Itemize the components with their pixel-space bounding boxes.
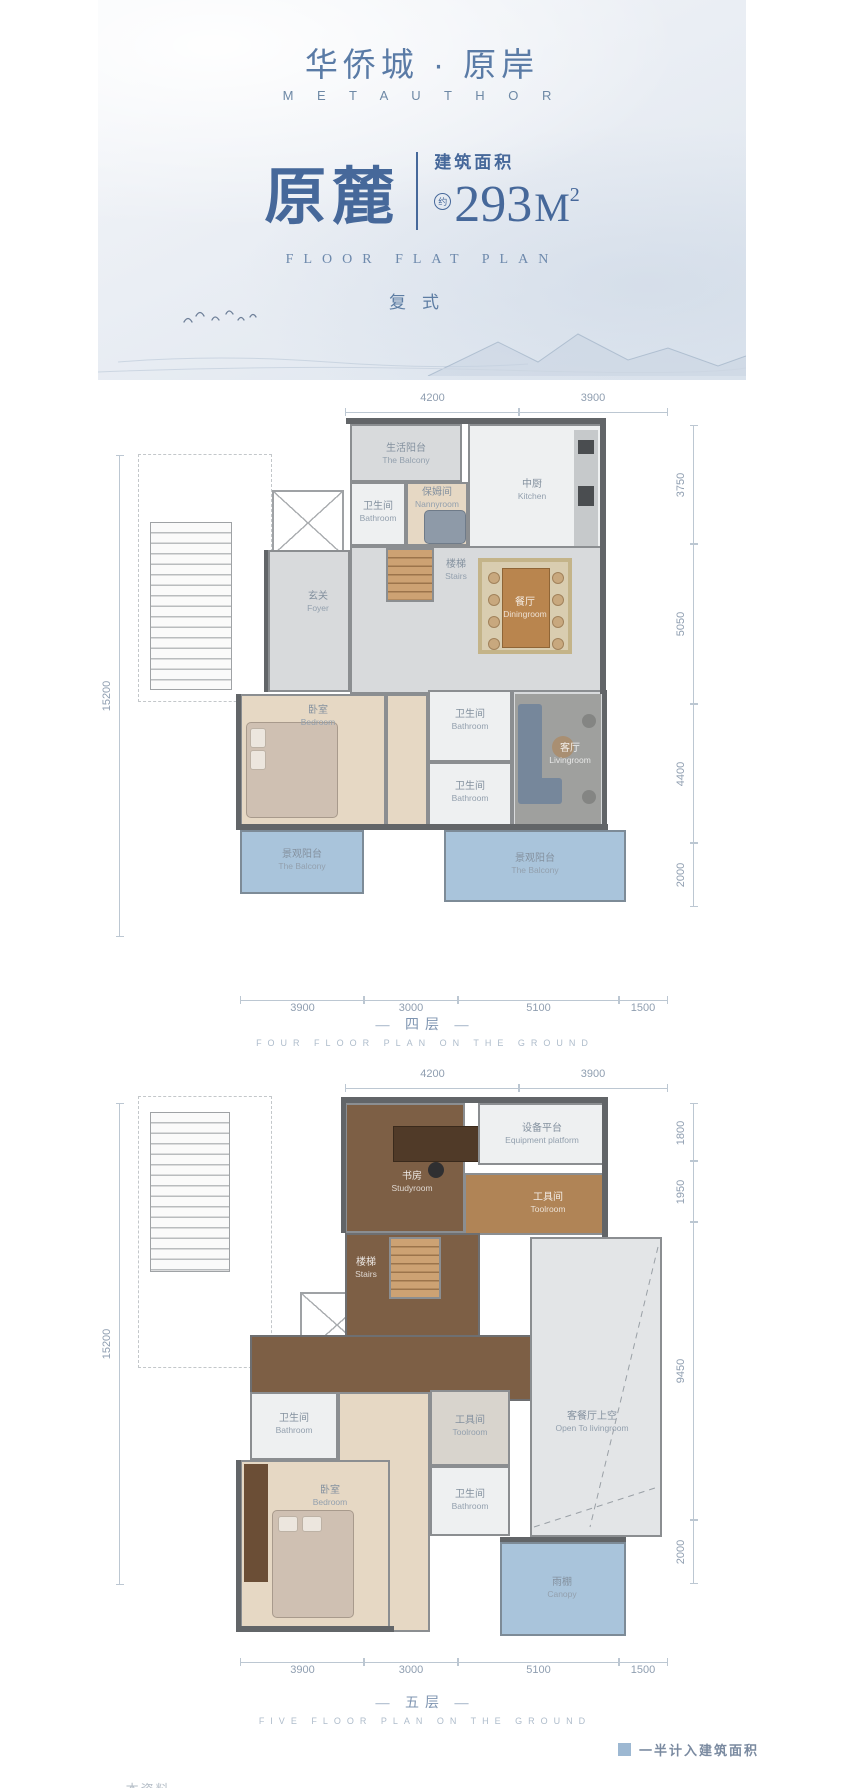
brand-logo: 华侨城 · 原岸	[98, 38, 746, 86]
legend-label: 一半计入建筑面积	[639, 1740, 759, 1759]
room-label-bathroom-top: 卫生间Bathroom	[360, 500, 397, 524]
unit-name: 原麓	[264, 146, 400, 236]
area-sup: 2	[570, 184, 580, 207]
dim-segment: 15200	[116, 455, 124, 937]
dim-segment: 5050	[690, 543, 698, 705]
room-label-stairs: 楼梯Stairs	[355, 1256, 377, 1280]
floor-flat-plan-label: FLOOR FLAT PLAN	[98, 252, 746, 268]
bed-pillow	[250, 728, 266, 748]
wall	[236, 1460, 241, 1632]
room-label-study: 书房Studyroom	[391, 1170, 432, 1194]
area-value: 293	[454, 175, 532, 234]
room-label-nannyroom: 保姆间Nannyroom	[415, 486, 459, 510]
dim-segment: 1500	[618, 1658, 668, 1666]
bed-pillow	[278, 1516, 298, 1532]
dim-segment: 3900	[518, 408, 668, 416]
room-label-equipment: 设备平台Equipment platform	[505, 1122, 579, 1146]
core-stairwell	[150, 522, 232, 690]
room-label-bedroom: 卧室Bedroom	[301, 704, 336, 728]
elevator-shaft	[272, 490, 344, 556]
dim-segment: 1800	[690, 1103, 698, 1162]
wall	[236, 694, 241, 830]
wall	[602, 690, 607, 830]
dim-segment: 15200	[116, 1103, 124, 1585]
floor4-subtitle: FOUR FLOOR PLAN ON THE GROUND	[0, 1038, 850, 1048]
room-label-balcony-left: 景观阳台The Balcony	[278, 848, 325, 872]
dining-chair	[488, 572, 500, 584]
dim-segment: 9450	[690, 1221, 698, 1521]
sofa	[518, 704, 542, 782]
dim-segment: 2000	[690, 1519, 698, 1584]
disclaimer-note: — 本资料……	[105, 1779, 525, 1788]
wall	[341, 1097, 606, 1103]
room-label-toolroom-top: 工具间Toolroom	[531, 1191, 566, 1215]
wall	[500, 1537, 626, 1542]
wall	[341, 1097, 346, 1233]
dim-segment: 4200	[345, 1084, 520, 1092]
room-stairs	[386, 548, 434, 602]
room-label-bedroom: 卧室Bedroom	[313, 1484, 348, 1508]
area-unit: M	[534, 184, 570, 231]
bed-pillow	[250, 750, 266, 770]
floor-plan-4: 生活阳台The Balcony 卫生间Bathroom 保姆间Nannyroom…	[0, 398, 850, 1072]
armchair	[582, 790, 596, 804]
room-label-stairs: 楼梯Stairs	[445, 558, 467, 582]
room-label-bathroom-low: 卫生间Bathroom	[452, 780, 489, 804]
bed-pillow	[302, 1516, 322, 1532]
dining-chair	[488, 638, 500, 650]
header-banner: 华侨城 · 原岸 M E T A U T H O R 原麓 建筑面积 约 293…	[98, 0, 746, 380]
room-label-bathroom-mid: 卫生间Bathroom	[452, 708, 489, 732]
brand-logo-en: M E T A U T H O R	[98, 88, 746, 103]
wall	[346, 418, 606, 424]
room-label-balcony-right: 景观阳台The Balcony	[511, 852, 558, 876]
dining-chair	[552, 616, 564, 628]
room-label-toolroom-mid: 工具间Toolroom	[453, 1414, 488, 1438]
title-divider	[416, 152, 418, 230]
room-stairs	[389, 1237, 441, 1299]
wall	[236, 824, 608, 830]
dining-chair	[552, 572, 564, 584]
floor5-subtitle: FIVE FLOOR PLAN ON THE GROUND	[0, 1716, 850, 1726]
nanny-bed	[424, 510, 466, 544]
dim-segment: 1500	[618, 996, 668, 1004]
study-desk	[393, 1126, 481, 1162]
floor-plan-5: 书房Studyroom 设备平台Equipment platform 工具间To…	[0, 1072, 850, 1788]
dim-segment: 5100	[457, 1658, 620, 1666]
void-dashed-lines	[530, 1237, 662, 1537]
wall	[602, 1097, 608, 1237]
dim-segment: 3900	[518, 1084, 668, 1092]
room-label-bathroom-mid: 卫生间Bathroom	[452, 1488, 489, 1512]
dim-segment: 3750	[690, 425, 698, 545]
dining-chair	[488, 616, 500, 628]
room-corridor	[386, 694, 428, 830]
dining-chair	[552, 638, 564, 650]
room-label-void: 客餐厅上空Open To livingroom	[555, 1410, 628, 1434]
wardrobe	[244, 1464, 268, 1582]
wall	[600, 418, 606, 694]
area-label: 建筑面积	[434, 148, 514, 173]
room-label-foyer: 玄关Foyer	[307, 590, 329, 614]
wall	[236, 1626, 394, 1632]
dim-segment: 1950	[690, 1160, 698, 1223]
room-label-kitchen: 中厨Kitchen	[518, 478, 546, 502]
sofa-corner	[518, 778, 562, 804]
room-label-life-balcony: 生活阳台The Balcony	[382, 442, 429, 466]
dim-segment: 4200	[345, 408, 520, 416]
dim-segment: 3900	[240, 1658, 365, 1666]
room-label-bathroom-left: 卫生间Bathroom	[276, 1412, 313, 1436]
area-row: 约 293 M 2	[434, 175, 580, 234]
armchair	[582, 714, 596, 728]
title-row: 原麓 建筑面积 约 293 M 2	[98, 146, 746, 236]
core-stairwell	[150, 1112, 230, 1272]
area-block: 建筑面积 约 293 M 2	[434, 148, 580, 234]
kitchen-appliance	[578, 440, 594, 454]
kitchen-appliance	[578, 486, 594, 506]
floor5-title: — 五层 —	[0, 1692, 850, 1712]
room-foyer	[268, 550, 350, 692]
mountains-art	[98, 312, 746, 376]
wall	[264, 550, 268, 692]
floor4-title: — 四层 —	[0, 1014, 850, 1034]
dining-chair	[488, 594, 500, 606]
poster-page: 华侨城 · 原岸 M E T A U T H O R 原麓 建筑面积 约 293…	[0, 0, 850, 1788]
dim-segment: 4400	[690, 703, 698, 844]
room-label-living: 客厅Livingroom	[549, 742, 591, 766]
dim-segment: 2000	[690, 842, 698, 907]
room-study	[345, 1103, 465, 1233]
legend-square-icon	[618, 1743, 631, 1756]
approx-circle: 约	[434, 193, 451, 210]
room-label-canopy: 雨棚Canopy	[547, 1576, 576, 1600]
dining-chair	[552, 594, 564, 606]
legend: 一半计入建筑面积	[618, 1740, 759, 1759]
dim-segment: 3000	[363, 1658, 459, 1666]
dim-segment: 3000	[363, 996, 459, 1004]
room-label-dining: 餐厅Diningroom	[503, 596, 546, 620]
dim-segment: 5100	[457, 996, 620, 1004]
dim-segment: 3900	[240, 996, 365, 1004]
